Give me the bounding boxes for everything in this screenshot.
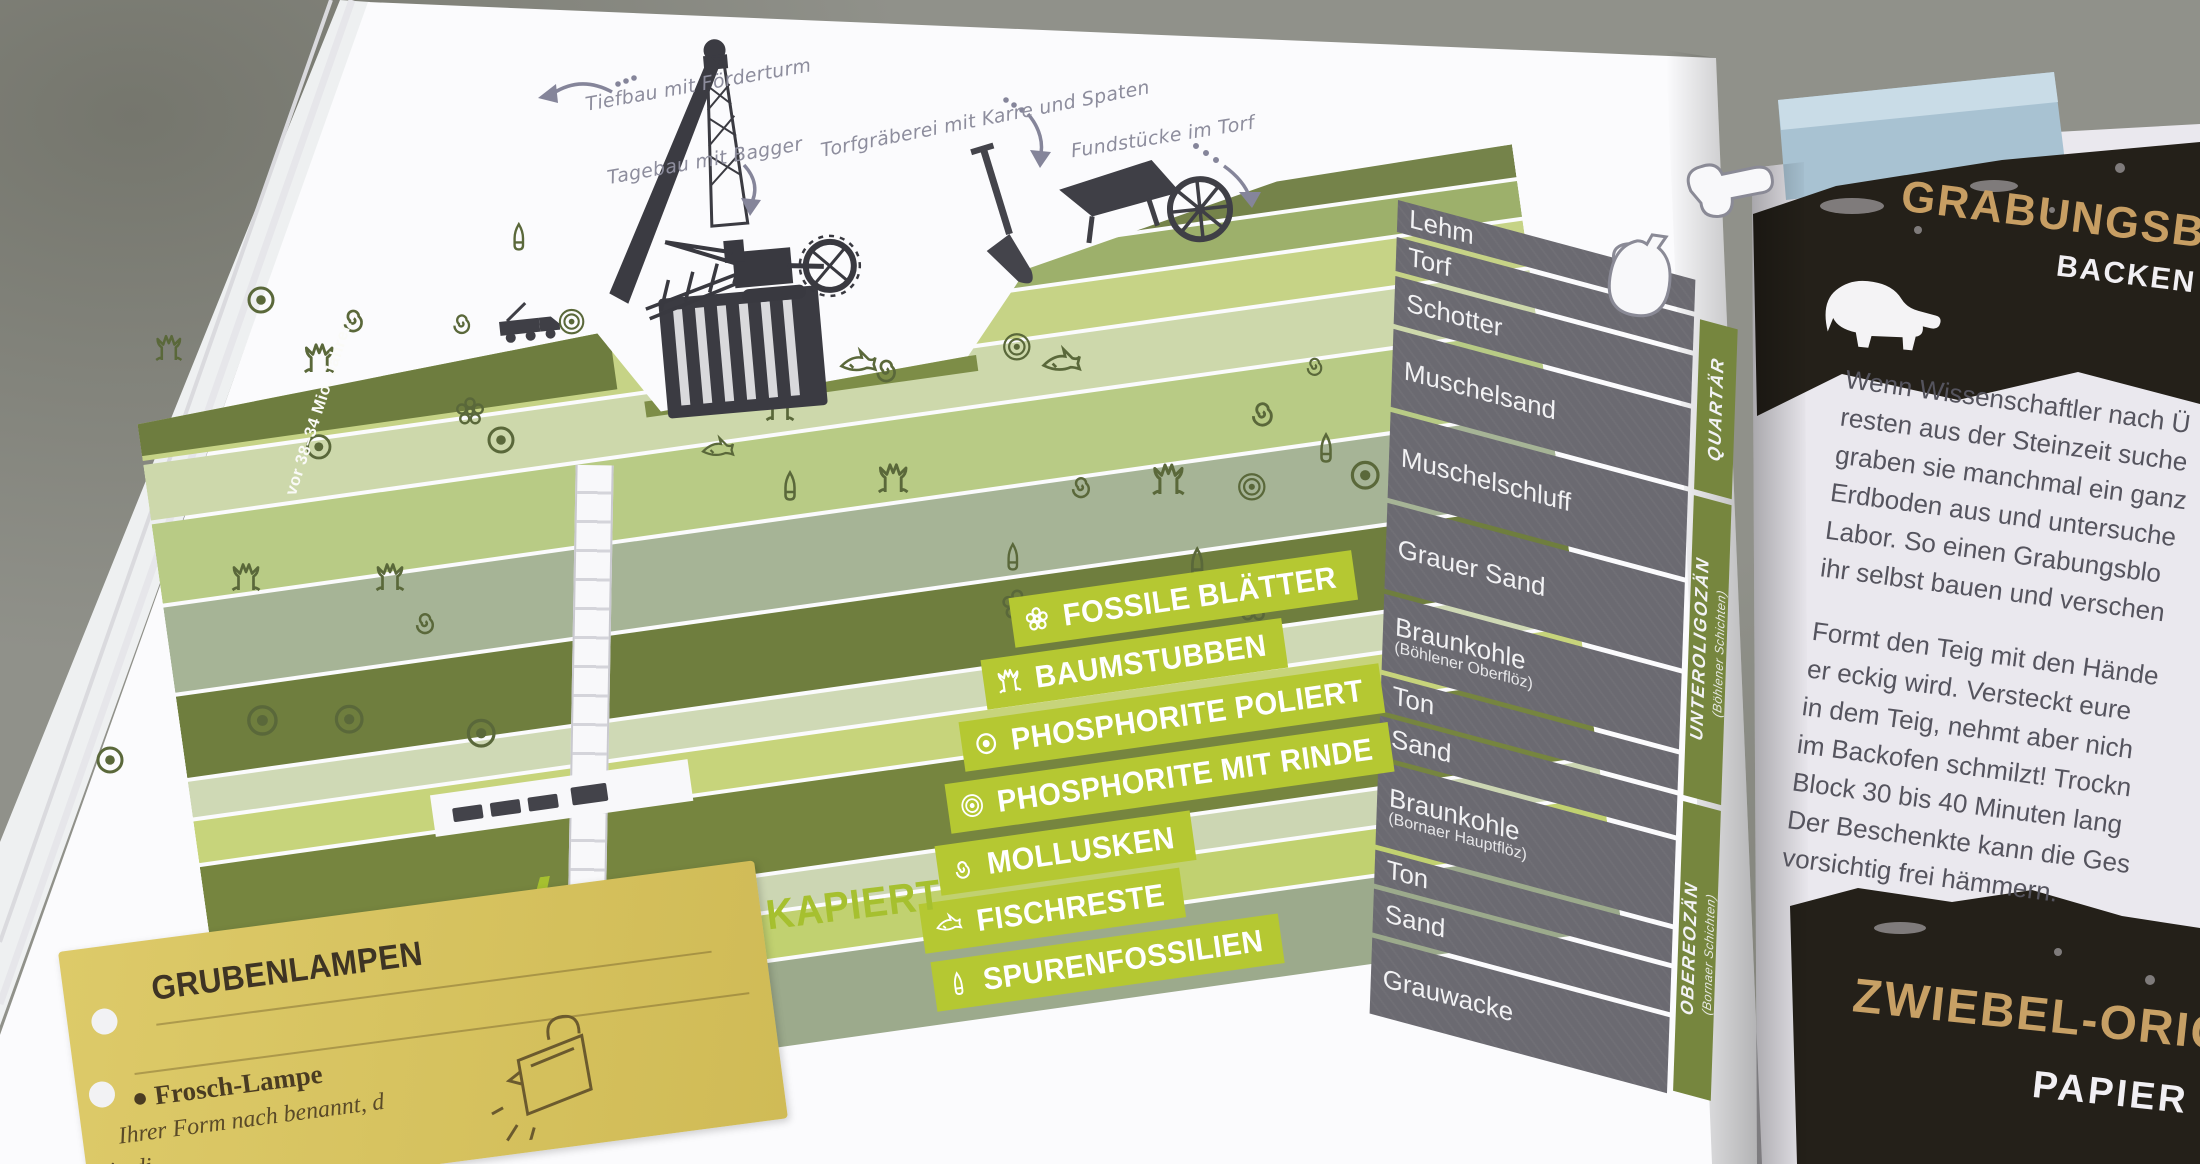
trace-fossil-icon [943, 968, 973, 999]
punch-hole [90, 1007, 119, 1036]
wheelbarrow-icon [1057, 152, 1233, 253]
jug-icon [1605, 230, 1676, 320]
phosphorite-rind-icon [957, 790, 987, 821]
punch-hole [87, 1080, 116, 1109]
phosphorite-polished-icon [971, 728, 1001, 759]
flower-icon [1021, 603, 1053, 637]
paragraph: Formt den Teig mit den Hände er eckig wi… [1780, 612, 2200, 932]
paragraph: Wenn Wissenschaftler nach Ü resten aus d… [1818, 360, 2200, 642]
bone-icon [1683, 155, 1775, 225]
lamp-icon [470, 996, 646, 1146]
bullet: ● [130, 1082, 150, 1114]
book-photo-scene: Lehm Torf Schotter Muschelsand Muschelsc… [0, 0, 2200, 1164]
mammoth-icon [1822, 277, 1944, 355]
card-text-line: in di [107, 1154, 153, 1164]
truck-icon [497, 300, 561, 344]
card-rule [134, 992, 749, 1075]
right-body-text: Wenn Wissenschaftler nach Ü resten aus d… [1780, 360, 2200, 932]
card-title: GRUBENLAMPEN [149, 935, 425, 1009]
stump-icon [993, 665, 1025, 699]
spade-icon [943, 141, 1061, 285]
mollusk-icon [947, 852, 977, 883]
